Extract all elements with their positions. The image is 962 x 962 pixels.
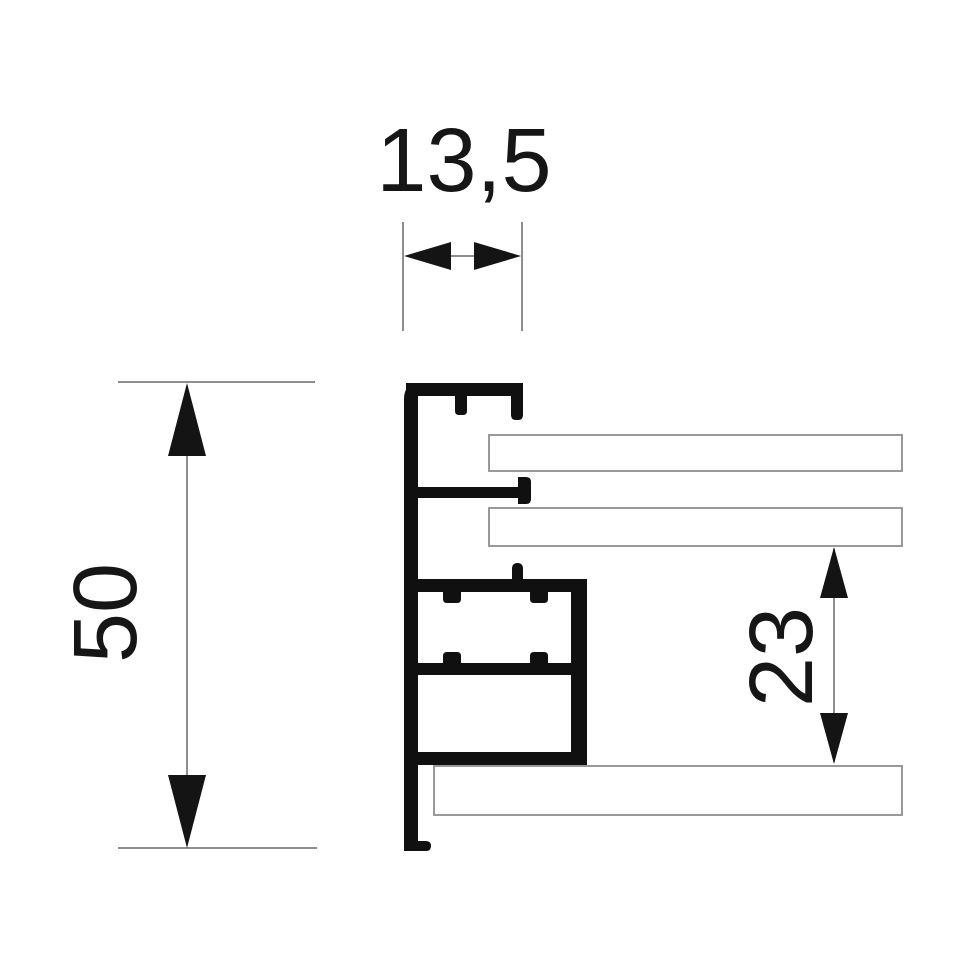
dimension-left-height-arrow-up [168, 383, 206, 456]
profile-box-tab-left [443, 592, 461, 603]
dimension-top-width-arrow-left [404, 242, 451, 270]
dimension-right-height-arrow-up [820, 547, 848, 598]
profile-gasket-nub [512, 563, 523, 579]
profile-glazing-arm-cap [518, 477, 531, 504]
dimension-top-width-label: 13,5 [376, 111, 551, 211]
dimension-right-height: 23 [732, 547, 848, 764]
dimension-top-width-arrow-right [474, 242, 521, 270]
dimension-left-height-label: 50 [56, 563, 156, 663]
dimension-left-height-arrow-down [168, 775, 206, 848]
profile-box-bump-right [530, 652, 548, 663]
profile-box-divider [418, 663, 571, 675]
technical-drawing-canvas: 13,5 50 23 [0, 0, 962, 962]
profile-top-tab [455, 396, 467, 415]
profile-bottom-foot [414, 841, 431, 851]
profile-top-flange [406, 383, 523, 396]
profile-box-tab-right [530, 592, 548, 603]
profile-top-right-leg [511, 396, 523, 420]
profile-box-right-wall [571, 579, 587, 765]
profile-box-top-bar [404, 579, 587, 592]
infill-panel-lower [434, 766, 902, 815]
dimension-right-height-label: 23 [732, 607, 832, 707]
profile-box-bump-left [443, 652, 461, 663]
profile-left-wall [404, 383, 420, 851]
infill-panel-upper [489, 435, 902, 471]
profile-box-bottom-bar [404, 752, 587, 765]
infill-panel-middle [489, 508, 902, 546]
profile-glazing-arm [418, 487, 520, 498]
dimension-top-width: 13,5 [376, 111, 551, 331]
dimension-right-height-arrow-down [820, 713, 848, 764]
profile-cross-section-drawing: 13,5 50 23 [0, 0, 962, 962]
dimension-left-height: 50 [56, 382, 317, 848]
